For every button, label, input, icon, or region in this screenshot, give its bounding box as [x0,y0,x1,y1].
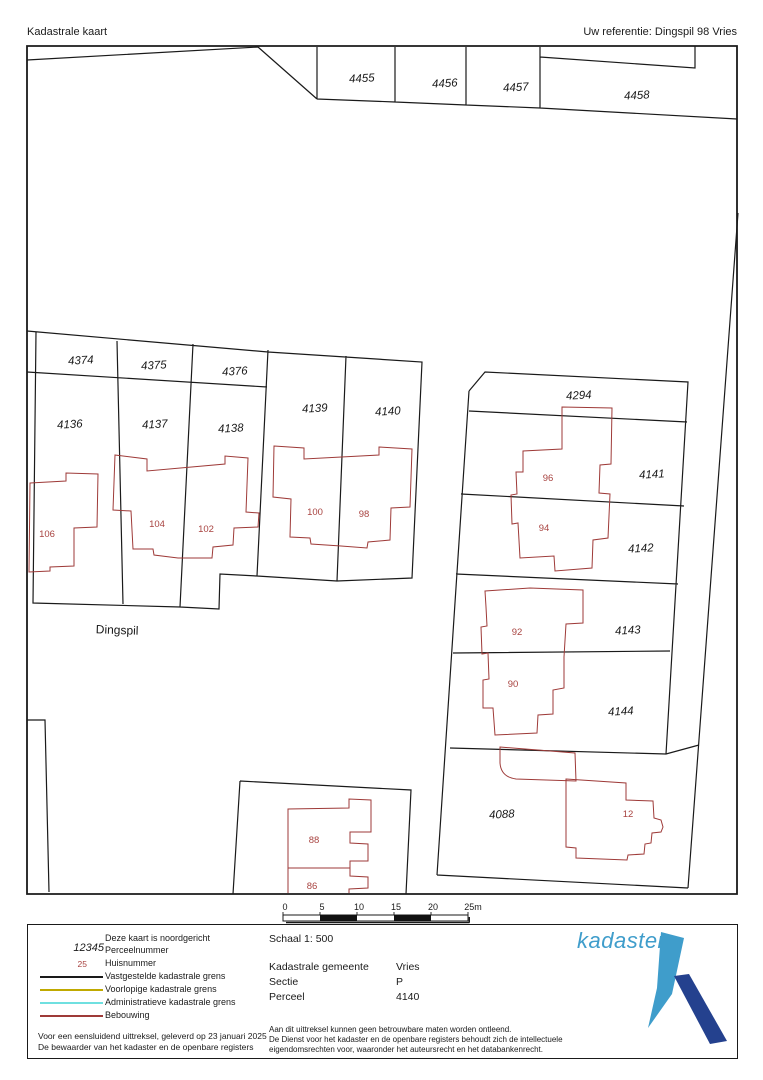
house-number-label: 92 [512,627,523,638]
logo-mark-dark [674,974,727,1044]
field-label-gemeente: Kadastrale gemeente [269,961,369,973]
parcel-number-label: 4140 [375,405,402,418]
parcel-number-label: 4139 [302,402,329,415]
parcel-number-label: 4455 [349,72,376,85]
field-value-gemeente: Vries [396,961,420,973]
north-note: Deze kaart is noordgericht [105,933,210,943]
legend-line-provisional [40,989,103,991]
parcel-number-label: 4456 [432,77,459,90]
parcel-number-label: 4141 [639,468,665,481]
house-number-label: 98 [359,509,370,520]
legend-symbol-housenumber: 25 [42,959,87,969]
legend-label-building: Bebouwing [105,1010,150,1020]
scale-tick-label: 20 [428,902,438,912]
legend-symbol-parcelnumber: 12345 [42,942,104,954]
scale-tick-label: 10 [354,902,364,912]
legend-footnote-1: Voor een eensluidend uittreksel, gelever… [38,1031,267,1041]
parcel-number-label: 4142 [628,542,655,555]
street-name-label: Dingspil [96,622,139,637]
building-92-90 [481,588,583,735]
scale-bar-segment [320,915,357,921]
parcel-boundaries-right-block [437,372,699,888]
parcel-number-label: 4374 [68,354,94,367]
field-value-sectie: P [396,976,403,988]
building-106 [29,473,98,572]
parcel-number-label: 4458 [624,89,651,102]
parcel-number-label: 4144 [608,705,634,718]
legend-footnote-2: De bewaarder van het kadaster en de open… [38,1042,253,1052]
building-88-86 [288,799,371,893]
building-96-94 [511,407,612,571]
house-number-labels: 106 104 102 100 98 96 94 92 90 88 86 12 [39,473,633,892]
parcel-boundaries-top [27,46,738,888]
legend-label-established: Vastgestelde kadastrale grens [105,971,225,981]
legend-panel: Deze kaart is noordgericht 12345 Perceel… [27,924,738,1059]
legend-label-provisional: Voorlopige kadastrale grens [105,984,217,994]
legend-label-parcelnumber: Perceelnummer [105,945,169,955]
scale-tick-label: 25m [464,902,482,912]
parcel-number-label: 4138 [218,422,245,435]
parcel-number-label: 4137 [142,418,169,431]
building-outlines [29,407,663,893]
cadastral-map: 4455 4456 4457 4458 4374 4375 4376 4136 … [0,0,763,1080]
scale-tick-label: 5 [319,902,324,912]
map-frame [27,46,737,894]
page: { "header": { "title": "Kadastrale kaart… [0,0,763,1080]
house-number-label: 12 [623,809,634,820]
parcel-number-label: 4143 [615,624,642,637]
parcel-boundaries-bottom [27,720,411,894]
scale-text: Schaal 1: 500 [269,933,333,945]
scale-bar-body [283,915,468,921]
field-label-perceel: Perceel [269,991,305,1003]
scale-bar-segment [394,915,431,921]
field-value-perceel: 4140 [396,991,419,1003]
house-number-label: 86 [307,881,318,892]
legend-label-administrative: Administratieve kadastrale grens [105,997,236,1007]
parcel-number-label: 4136 [57,418,84,431]
disclaimer-line-1: Aan dit uittreksel kunnen geen betrouwba… [269,1025,511,1035]
parcel-number-label: 4088 [489,808,516,821]
scale-tick-label: 15 [391,902,401,912]
parcel-number-label: 4457 [503,81,530,94]
legend-label-housenumber: Huisnummer [105,958,156,968]
house-number-label: 90 [508,679,519,690]
disclaimer-line-2: De Dienst voor het kadaster en de openba… [269,1035,563,1045]
legend-line-established [40,976,103,978]
scale-bar: 0 5 10 15 20 25m [282,902,481,923]
scale-tick-label: 0 [282,902,287,912]
building-104-102 [113,455,259,558]
building-100-98 [273,446,412,548]
parcel-number-label: 4376 [222,365,249,378]
legend-line-administrative [40,1002,103,1004]
house-number-label: 88 [309,835,320,846]
field-label-sectie: Sectie [269,976,298,988]
house-number-label: 106 [39,529,55,540]
legend-line-building [40,1015,103,1017]
house-number-label: 102 [198,524,214,535]
parcel-number-label: 4375 [141,359,168,372]
house-number-label: 104 [149,519,165,530]
building-shed-4088 [500,747,576,781]
parcel-number-labels: 4455 4456 4457 4458 4374 4375 4376 4136 … [57,72,665,821]
house-number-label: 94 [539,523,550,534]
parcel-number-label: 4294 [566,389,592,402]
kadaster-logo-mark [641,929,741,1054]
disclaimer-line-3: eigendomsrechten voor, waaronder het aut… [269,1045,543,1055]
house-number-label: 100 [307,507,323,518]
building-12 [566,779,663,860]
house-number-label: 96 [543,473,554,484]
